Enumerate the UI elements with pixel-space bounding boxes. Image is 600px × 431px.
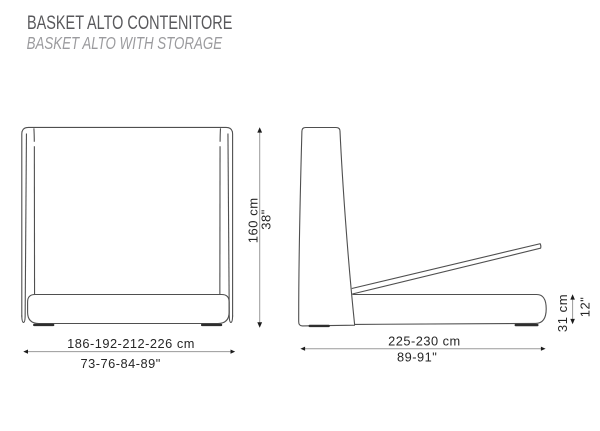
svg-text:BASKET ALTO CONTENITORE: BASKET ALTO CONTENITORE: [27, 12, 232, 33]
svg-text:225-230 cm: 225-230 cm: [388, 333, 461, 348]
svg-text:BASKET ALTO WITH STORAGE: BASKET ALTO WITH STORAGE: [27, 34, 223, 53]
svg-text:73-76-84-89": 73-76-84-89": [81, 356, 161, 371]
svg-text:89-91": 89-91": [397, 350, 437, 365]
svg-text:12": 12": [578, 297, 593, 318]
svg-text:31 cm: 31 cm: [555, 294, 570, 332]
svg-text:186-192-212-226 cm: 186-192-212-226 cm: [67, 336, 195, 351]
svg-text:38": 38": [259, 209, 274, 230]
